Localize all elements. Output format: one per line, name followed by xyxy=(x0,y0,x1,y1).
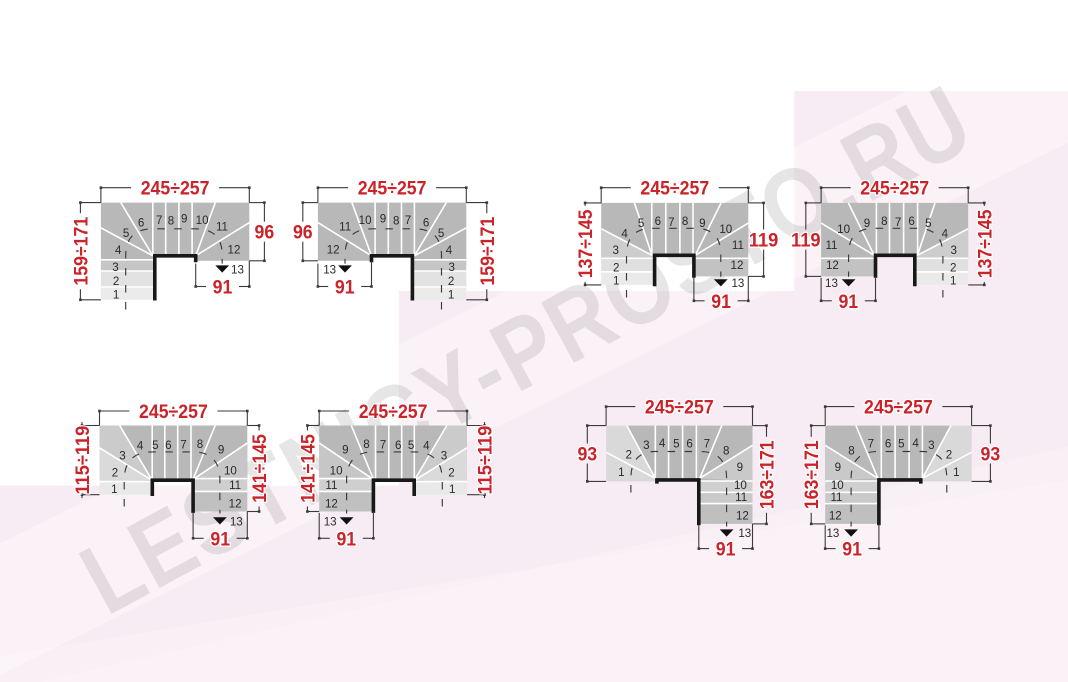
svg-text:119: 119 xyxy=(791,230,821,252)
svg-text:245÷257: 245÷257 xyxy=(860,178,929,200)
svg-text:10: 10 xyxy=(359,214,372,227)
svg-text:6: 6 xyxy=(655,215,661,228)
svg-text:5: 5 xyxy=(898,438,904,451)
svg-text:1: 1 xyxy=(449,483,455,496)
svg-text:7: 7 xyxy=(180,438,186,451)
svg-text:13: 13 xyxy=(323,263,336,276)
svg-text:13: 13 xyxy=(738,527,751,540)
svg-text:7: 7 xyxy=(868,438,874,451)
svg-text:8: 8 xyxy=(848,444,854,457)
svg-text:115÷119: 115÷119 xyxy=(475,426,497,495)
svg-text:13: 13 xyxy=(731,277,744,290)
svg-text:10: 10 xyxy=(330,465,343,478)
svg-text:7: 7 xyxy=(704,438,710,451)
svg-text:9: 9 xyxy=(342,444,348,457)
svg-text:91: 91 xyxy=(711,291,731,313)
svg-text:4: 4 xyxy=(912,437,919,450)
svg-text:5: 5 xyxy=(638,217,644,230)
svg-text:6: 6 xyxy=(138,216,144,229)
svg-text:4: 4 xyxy=(942,228,949,241)
svg-text:245÷257: 245÷257 xyxy=(359,401,428,423)
svg-text:91: 91 xyxy=(213,277,233,299)
svg-text:5: 5 xyxy=(925,217,931,230)
svg-text:11: 11 xyxy=(830,491,842,504)
svg-text:245÷257: 245÷257 xyxy=(141,178,210,200)
svg-text:2: 2 xyxy=(625,448,631,461)
svg-text:13: 13 xyxy=(324,515,337,528)
svg-text:5: 5 xyxy=(673,438,679,451)
svg-text:3: 3 xyxy=(950,244,956,257)
svg-text:11: 11 xyxy=(229,479,241,492)
svg-text:10: 10 xyxy=(719,223,732,236)
svg-text:2: 2 xyxy=(448,275,454,288)
svg-text:137÷145: 137÷145 xyxy=(974,209,996,278)
svg-text:91: 91 xyxy=(335,277,355,299)
svg-text:9: 9 xyxy=(181,212,187,225)
svg-text:6: 6 xyxy=(885,438,891,451)
svg-text:9: 9 xyxy=(380,212,386,225)
svg-text:163÷171: 163÷171 xyxy=(757,440,779,509)
svg-text:11: 11 xyxy=(339,221,351,234)
svg-text:8: 8 xyxy=(682,215,688,228)
svg-text:12: 12 xyxy=(229,498,242,511)
svg-text:2: 2 xyxy=(448,467,454,480)
svg-text:9: 9 xyxy=(835,461,841,474)
svg-text:8: 8 xyxy=(363,438,369,451)
svg-text:2: 2 xyxy=(112,467,118,480)
svg-text:4: 4 xyxy=(423,440,430,453)
svg-text:3: 3 xyxy=(612,244,618,257)
svg-text:5: 5 xyxy=(123,227,129,240)
svg-text:13: 13 xyxy=(825,277,838,290)
svg-text:11: 11 xyxy=(216,221,228,234)
svg-text:7: 7 xyxy=(895,216,901,229)
svg-text:6: 6 xyxy=(165,439,171,452)
svg-text:7: 7 xyxy=(668,216,674,229)
svg-text:1: 1 xyxy=(448,289,454,302)
svg-text:3: 3 xyxy=(119,450,125,463)
svg-text:3: 3 xyxy=(112,261,118,274)
svg-text:5: 5 xyxy=(438,227,444,240)
svg-text:10: 10 xyxy=(224,465,237,478)
svg-text:8: 8 xyxy=(723,444,729,457)
svg-text:5: 5 xyxy=(152,439,158,452)
svg-text:8: 8 xyxy=(197,438,203,451)
svg-text:2: 2 xyxy=(950,261,956,274)
svg-text:10: 10 xyxy=(196,214,209,227)
svg-text:11: 11 xyxy=(732,239,744,252)
svg-text:1: 1 xyxy=(113,289,119,302)
svg-text:12: 12 xyxy=(325,498,338,511)
svg-text:91: 91 xyxy=(716,539,736,561)
svg-text:91: 91 xyxy=(336,528,356,550)
svg-text:245÷257: 245÷257 xyxy=(864,397,933,419)
svg-text:137÷145: 137÷145 xyxy=(575,209,597,278)
svg-text:3: 3 xyxy=(441,450,447,463)
svg-text:119: 119 xyxy=(749,230,779,252)
svg-text:2: 2 xyxy=(113,275,119,288)
svg-text:4: 4 xyxy=(621,228,628,241)
svg-text:245÷257: 245÷257 xyxy=(139,401,208,423)
svg-text:8: 8 xyxy=(168,214,174,227)
svg-text:141÷145: 141÷145 xyxy=(249,434,271,503)
svg-text:11: 11 xyxy=(825,239,837,252)
svg-text:245÷257: 245÷257 xyxy=(358,178,427,200)
svg-text:163÷171: 163÷171 xyxy=(801,440,823,509)
svg-text:1: 1 xyxy=(111,483,117,496)
svg-text:91: 91 xyxy=(838,291,858,313)
svg-text:7: 7 xyxy=(380,438,386,451)
svg-text:6: 6 xyxy=(908,215,914,228)
svg-text:6: 6 xyxy=(395,439,401,452)
svg-text:93: 93 xyxy=(981,444,1001,466)
svg-text:11: 11 xyxy=(735,491,747,504)
svg-text:2: 2 xyxy=(613,261,619,274)
svg-text:8: 8 xyxy=(393,214,399,227)
svg-text:115÷119: 115÷119 xyxy=(72,426,94,495)
svg-text:6: 6 xyxy=(686,438,692,451)
svg-text:4: 4 xyxy=(446,244,453,257)
svg-text:13: 13 xyxy=(230,515,243,528)
svg-text:10: 10 xyxy=(837,223,850,236)
svg-text:12: 12 xyxy=(327,244,340,257)
svg-text:13: 13 xyxy=(231,263,244,276)
svg-text:1: 1 xyxy=(950,274,956,287)
svg-text:12: 12 xyxy=(731,259,744,272)
svg-text:12: 12 xyxy=(829,510,842,523)
svg-text:9: 9 xyxy=(699,217,705,230)
svg-text:96: 96 xyxy=(293,222,313,244)
svg-text:245÷257: 245÷257 xyxy=(645,397,714,419)
svg-text:12: 12 xyxy=(228,244,241,257)
svg-text:245÷257: 245÷257 xyxy=(640,178,709,200)
svg-text:11: 11 xyxy=(325,479,337,492)
svg-text:9: 9 xyxy=(737,461,743,474)
svg-text:4: 4 xyxy=(659,437,666,450)
svg-text:4: 4 xyxy=(115,244,122,257)
svg-text:3: 3 xyxy=(643,439,649,452)
svg-text:159÷171: 159÷171 xyxy=(477,217,499,286)
svg-text:13: 13 xyxy=(826,527,839,540)
svg-text:1: 1 xyxy=(953,466,959,479)
svg-text:1: 1 xyxy=(618,466,624,479)
svg-text:3: 3 xyxy=(448,261,454,274)
svg-text:8: 8 xyxy=(881,215,887,228)
svg-text:9: 9 xyxy=(218,444,224,457)
svg-text:9: 9 xyxy=(864,217,870,230)
svg-text:12: 12 xyxy=(736,510,749,523)
svg-text:91: 91 xyxy=(210,528,230,550)
svg-text:159÷171: 159÷171 xyxy=(70,217,92,286)
svg-text:93: 93 xyxy=(577,444,597,466)
svg-text:3: 3 xyxy=(928,439,934,452)
svg-text:12: 12 xyxy=(826,259,839,272)
svg-text:1: 1 xyxy=(613,274,619,287)
svg-text:2: 2 xyxy=(946,448,952,461)
svg-text:96: 96 xyxy=(255,222,275,244)
svg-text:7: 7 xyxy=(405,214,411,227)
svg-text:91: 91 xyxy=(842,539,862,561)
svg-text:4: 4 xyxy=(137,440,144,453)
svg-text:7: 7 xyxy=(156,214,162,227)
svg-text:6: 6 xyxy=(423,216,429,229)
svg-text:5: 5 xyxy=(408,439,414,452)
svg-text:141÷145: 141÷145 xyxy=(297,434,319,503)
